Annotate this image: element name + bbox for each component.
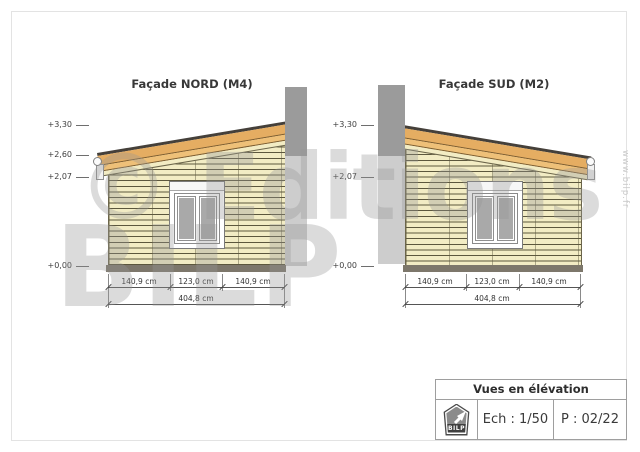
- dimension-label: 140,9 cm: [113, 277, 165, 286]
- plan-sheet: Façade NORD (M4) +3,30 +2,60 +2,07 +0,00: [0, 0, 640, 452]
- chimney-below-roof: [378, 156, 405, 264]
- title-block-header: Vues en élévation: [436, 380, 626, 400]
- window-glass: [477, 198, 492, 239]
- window-glazing: [174, 193, 220, 244]
- elevation-tick: [76, 177, 89, 178]
- extension-line: [519, 274, 520, 291]
- window: [467, 181, 523, 249]
- logo-cell: BILP: [436, 400, 478, 439]
- bilp-logo: BILP: [443, 404, 471, 436]
- dimension-label: 140,9 cm: [227, 277, 279, 286]
- page-number-cell: P : 02/22: [554, 400, 626, 439]
- dimension-label: 140,9 cm: [523, 277, 575, 286]
- scale-cell: Ech : 1/50: [478, 400, 554, 439]
- downspout: [96, 164, 104, 180]
- plinth: [106, 265, 286, 272]
- chimney-below-roof: [285, 156, 307, 266]
- window: [169, 181, 225, 249]
- window-glass: [179, 198, 194, 239]
- window-lintel: [468, 182, 522, 191]
- elevation-tick: [361, 177, 374, 178]
- dimension-line-total: [108, 304, 284, 305]
- downspout: [587, 164, 595, 180]
- elevation-tick: [76, 266, 89, 267]
- facade-sud-title: Façade SUD (M2): [384, 77, 604, 91]
- facade-nord-title: Façade NORD (M4): [82, 77, 302, 91]
- dimension-label: 123,0 cm: [466, 277, 518, 286]
- elevation-tick: [76, 155, 89, 156]
- elevation-label-207: +2,07: [32, 172, 72, 181]
- dimension-label: 140,9 cm: [409, 277, 461, 286]
- elevation-label-000: +0,00: [32, 261, 72, 270]
- elevation-label-330: +3,30: [317, 120, 357, 129]
- window-sash: [177, 196, 196, 241]
- dimension-line: [108, 287, 284, 288]
- gutter-end-cap: [93, 157, 102, 166]
- dimension-label: 123,0 cm: [170, 277, 222, 286]
- dimension-line-total: [405, 304, 580, 305]
- window-sash: [497, 196, 516, 241]
- elevation-label-207: +2,07: [317, 172, 357, 181]
- window-lintel: [170, 182, 224, 191]
- elevation-tick: [361, 125, 374, 126]
- chimney: [378, 85, 405, 156]
- title-block: Vues en élévation BILP Ech : 1/50 P : 02…: [435, 379, 627, 440]
- dimension-line: [405, 287, 580, 288]
- website-vertical-text: www.bilp.fr: [620, 150, 630, 300]
- window-glazing: [472, 193, 518, 244]
- elevation-tick: [361, 266, 374, 267]
- elevation-label-330: +3,30: [32, 120, 72, 129]
- dimension-label-total: 404,8 cm: [466, 294, 518, 303]
- title-block-row: BILP Ech : 1/50 P : 02/22: [436, 400, 626, 439]
- window-sash: [199, 196, 218, 241]
- gutter-end-cap: [586, 157, 595, 166]
- elevation-tick: [76, 125, 89, 126]
- dimension-label-total: 404,8 cm: [170, 294, 222, 303]
- plinth: [403, 265, 583, 272]
- elevation-label-260: +2,60: [32, 150, 72, 159]
- bilp-logo-text: BILP: [446, 424, 468, 433]
- elevation-label-000: +0,00: [317, 261, 357, 270]
- extension-line: [222, 274, 223, 291]
- window-sash: [475, 196, 494, 241]
- window-glass: [201, 198, 216, 239]
- window-glass: [499, 198, 514, 239]
- chimney: [285, 87, 307, 156]
